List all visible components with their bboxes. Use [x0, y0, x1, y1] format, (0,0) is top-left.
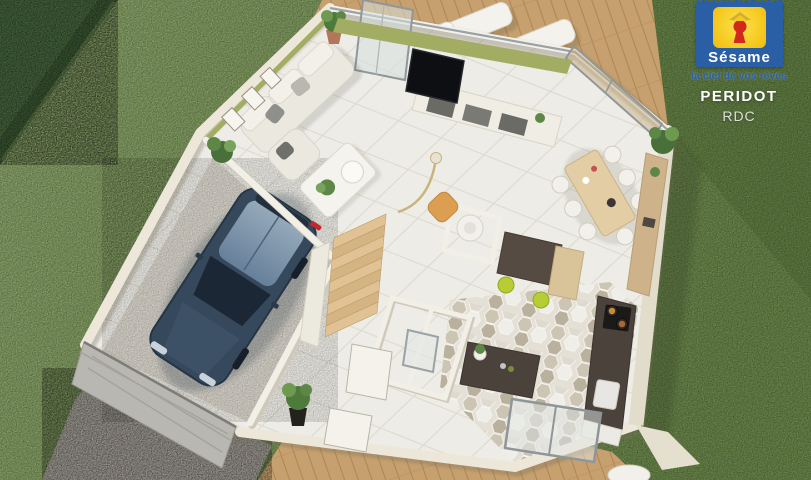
lime-stool [498, 277, 514, 293]
sink [593, 379, 620, 410]
interior-door [324, 408, 372, 452]
sideboard-plant [650, 167, 660, 177]
console-plant [535, 113, 545, 123]
logo-keyhole-tile [713, 7, 766, 48]
bottle [500, 363, 506, 369]
logo-tagline: la clef de vos rêves [688, 71, 790, 82]
sesame-logo: Sésame [696, 2, 783, 67]
lime-stool [533, 292, 549, 308]
plan-title: PERIDOT [688, 88, 790, 105]
interior-door [346, 344, 392, 400]
bottle [508, 366, 514, 372]
roof-icon-inner [732, 15, 748, 21]
floor-plan-render: MAISONS Sésame la clef de vos rêves PERI… [0, 0, 811, 480]
lamp-shade [431, 153, 442, 164]
floor-label: RDC [688, 108, 790, 124]
hall-window [403, 330, 438, 372]
logo-name: Sésame [696, 49, 783, 66]
